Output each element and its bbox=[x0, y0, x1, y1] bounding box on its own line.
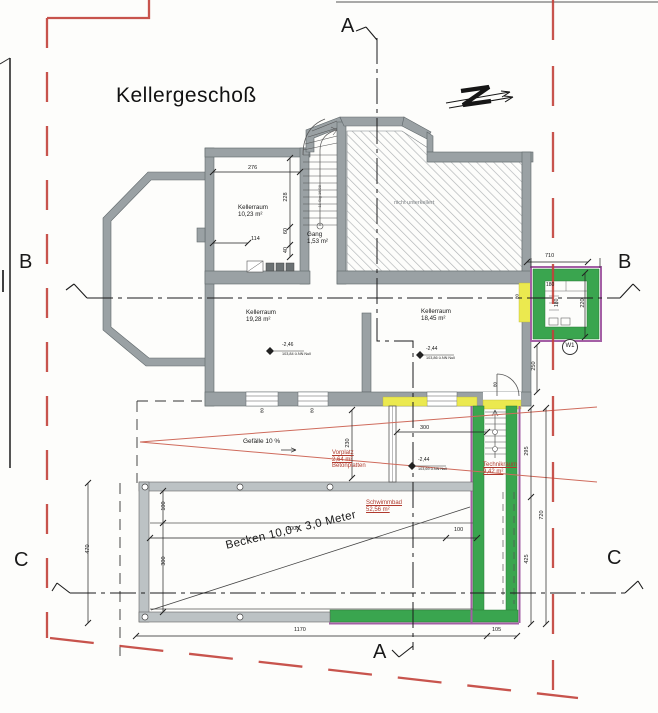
dim-105: 105 bbox=[492, 627, 501, 633]
room-label-technikraum: Technikraum 9,42 m² bbox=[483, 462, 517, 475]
dim-720: 720 bbox=[539, 503, 545, 527]
dim-1170: 1170 bbox=[294, 627, 306, 633]
dim-300-paved: 300 bbox=[420, 425, 429, 431]
section-line-a bbox=[377, 38, 413, 650]
dim-100-pool-top: 100 bbox=[161, 494, 167, 518]
existing-area-label: nicht unterkellert bbox=[394, 200, 434, 206]
dim-114: 114 bbox=[251, 236, 260, 242]
section-mark-a-top: A bbox=[341, 15, 354, 37]
room-label-kellerraum3: Kellerraum 18,45 m² bbox=[421, 309, 451, 323]
level-outside-datum: 103,69 ü.NN Null bbox=[418, 467, 447, 471]
window-mark-label: W1 bbox=[562, 343, 578, 350]
section-mark-c-right: C bbox=[607, 547, 621, 569]
dim-470: 470 bbox=[85, 537, 91, 561]
room-label-schwimmbad: Schwimmbad 52,56 m² bbox=[366, 500, 402, 513]
demolition-mark-yellow-1 bbox=[383, 397, 427, 406]
room-label-kellerraum2: Kellerraum 19,28 m² bbox=[246, 310, 276, 324]
stair-shaft-new-walls bbox=[329, 406, 520, 624]
dim-180-w: 180 bbox=[546, 283, 554, 289]
dim-1000: 1000 bbox=[287, 526, 299, 532]
fixtures bbox=[247, 261, 294, 272]
level-outside-value: -2,44 bbox=[418, 458, 429, 464]
slope-arrow bbox=[281, 448, 296, 452]
pool-walls bbox=[139, 482, 473, 622]
level-left-datum: 103,84 ü.NN Null bbox=[282, 352, 311, 356]
dim-80-opening: 80 bbox=[514, 289, 519, 305]
dim-228: 228 bbox=[283, 185, 289, 209]
basement-floor-plan: Kellergeschoß A A B B C C Kellerraum 10,… bbox=[0, 0, 658, 713]
section-mark-b-right: B bbox=[618, 251, 631, 273]
demolition-mark-yellow-shaft bbox=[519, 283, 531, 322]
dim-250: 250 bbox=[531, 354, 537, 378]
dim-40: 40 bbox=[283, 238, 289, 262]
section-mark-b-left: B bbox=[19, 251, 32, 273]
dim-80-win1: 80 bbox=[259, 403, 264, 419]
level-right-value: -2,44 bbox=[426, 347, 437, 353]
dim-180-h: 180 bbox=[555, 291, 561, 315]
dim-80-win2: 80 bbox=[309, 403, 314, 419]
level-left-value: -2,46 bbox=[282, 343, 293, 349]
dim-300-pool: 300 bbox=[161, 549, 167, 573]
demolition-mark-yellow-2 bbox=[457, 397, 477, 406]
dim-220: 220 bbox=[580, 291, 586, 315]
vorplatz-window-wall bbox=[389, 406, 396, 482]
dim-710: 710 bbox=[545, 253, 554, 259]
level-right-datum: 103,86 ü.NN Null bbox=[426, 356, 455, 360]
dim-100-pool-right: 100 bbox=[454, 527, 463, 533]
dim-80-door: 80 bbox=[492, 377, 497, 393]
slope-label: Gefälle 10 % bbox=[243, 438, 280, 445]
dim-230: 230 bbox=[345, 431, 351, 455]
section-mark-c-left: C bbox=[14, 549, 28, 571]
north-arrow-icon bbox=[446, 87, 513, 108]
page-title: Kellergeschoß bbox=[116, 84, 257, 108]
pool-lines bbox=[142, 484, 473, 620]
stairs-note: 11 Stg 16/28 bbox=[318, 176, 322, 216]
floor-plan-drawing bbox=[0, 0, 658, 713]
dim-425: 425 bbox=[524, 547, 530, 571]
dim-276: 276 bbox=[248, 165, 257, 171]
room-label-kellerraum1: Kellerraum 10,23 m² bbox=[238, 205, 268, 219]
dim-295: 295 bbox=[524, 439, 530, 463]
light-shaft bbox=[531, 267, 601, 341]
room-label-gang: Gang 1,53 m² bbox=[307, 232, 328, 246]
section-mark-a-bottom: A bbox=[373, 641, 386, 663]
